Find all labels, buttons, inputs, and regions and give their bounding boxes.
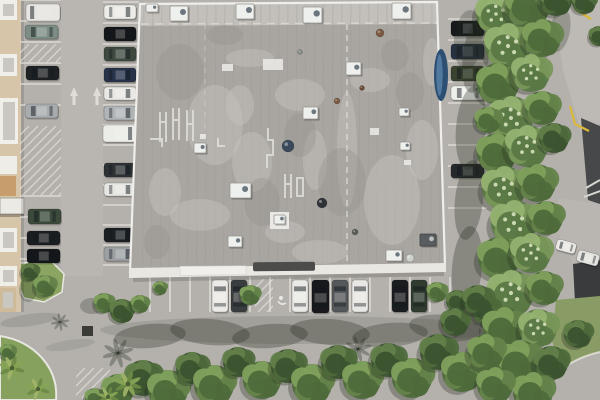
roof-vent	[376, 29, 384, 37]
hvac-unit	[386, 250, 402, 261]
roof-patch	[222, 64, 233, 71]
parked-car	[104, 163, 137, 179]
roof-vent	[282, 140, 294, 152]
parked-car	[332, 280, 349, 314]
parked-car	[104, 47, 137, 63]
hvac-unit	[230, 183, 251, 198]
parked-car	[104, 5, 137, 21]
parked-car	[25, 104, 59, 120]
dark-awning	[253, 262, 315, 272]
roof-patch	[263, 59, 283, 70]
parked-car	[28, 209, 62, 226]
parked-car	[25, 25, 59, 41]
parked-car	[27, 231, 61, 247]
parked-car	[104, 106, 137, 122]
roof-vent	[334, 98, 340, 104]
roof-patch	[404, 160, 411, 165]
hvac-unit	[420, 234, 436, 246]
aerial-photo-svg	[0, 0, 600, 400]
aerial-photo	[0, 0, 600, 400]
handicap-symbol	[279, 296, 283, 300]
parked-car	[103, 125, 137, 144]
entry-canopy	[180, 266, 246, 276]
parked-car	[26, 66, 60, 82]
roof-vent	[360, 86, 365, 91]
parked-car	[104, 27, 137, 43]
roof-vent	[352, 229, 358, 235]
entry-awning	[0, 198, 24, 214]
roof-vent	[298, 50, 303, 55]
storm-drain	[82, 326, 93, 336]
parked-car	[104, 87, 137, 102]
roof-vent	[317, 198, 327, 208]
neighbor-building	[0, 0, 24, 312]
parked-car	[352, 280, 369, 314]
roof-vent	[406, 254, 414, 262]
parked-car	[312, 280, 330, 315]
main-building-roof	[130, 0, 445, 275]
parked-car	[104, 68, 137, 84]
roof-patch	[200, 134, 206, 139]
parked-car	[392, 280, 409, 314]
parked-car	[27, 249, 61, 265]
parked-car	[212, 280, 229, 314]
parked-car	[26, 4, 61, 23]
roof-patch	[370, 128, 379, 135]
parked-car	[292, 280, 309, 314]
hvac-unit	[146, 4, 158, 12]
